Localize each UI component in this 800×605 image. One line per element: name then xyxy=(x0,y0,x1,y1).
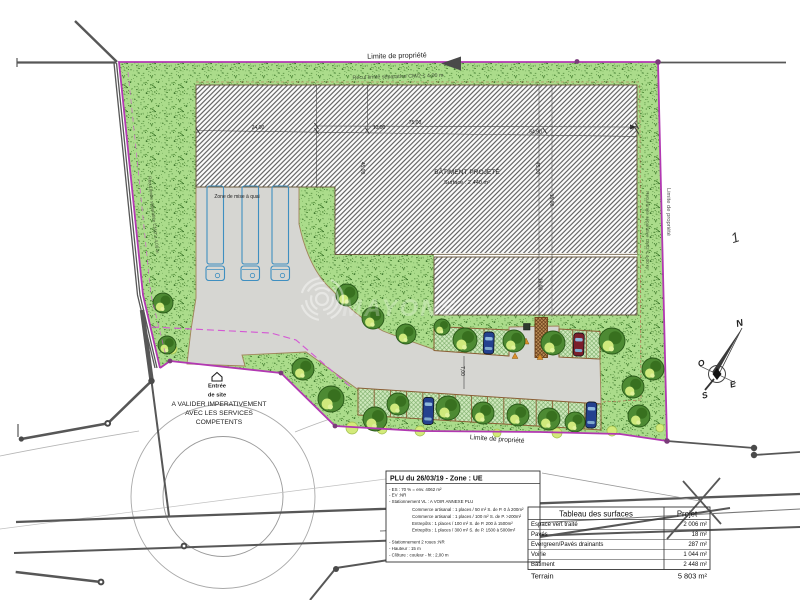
svg-text:Tableau des surfaces: Tableau des surfaces xyxy=(559,510,633,519)
svg-text:de site: de site xyxy=(208,393,227,399)
svg-text:2 006 m²: 2 006 m² xyxy=(683,522,707,528)
svg-text:Entrepôts : 1 places / 100 m²: Entrepôts : 1 places / 100 m² S. de P. 2… xyxy=(412,521,513,526)
svg-text:- Clôture : couleur - ht : 2,0: - Clôture : couleur - ht : 2,00 m xyxy=(389,553,449,558)
svg-text:PLU du 26/03/19 - Zone : UE: PLU du 26/03/19 - Zone : UE xyxy=(390,476,483,483)
svg-text:Zone de mise à quai: Zone de mise à quai xyxy=(214,194,259,200)
svg-text:75,00: 75,00 xyxy=(409,120,422,126)
svg-text:45,00: 45,00 xyxy=(534,162,540,175)
svg-text:Bâtiment: Bâtiment xyxy=(531,562,555,568)
svg-text:Commerce artisanal : 1 places: Commerce artisanal : 1 places / 100 m² S… xyxy=(412,514,522,519)
svg-text:7,00: 7,00 xyxy=(459,366,465,376)
svg-text:54,90: 54,90 xyxy=(529,130,542,136)
svg-text:24,00: 24,00 xyxy=(252,125,265,131)
svg-text:Evergreen/Pavés drainants: Evergreen/Pavés drainants xyxy=(531,542,603,548)
svg-text:Entrepôts : 1 places / 300 m²: Entrepôts : 1 places / 300 m² S. de P. 1… xyxy=(412,528,516,533)
svg-text:- Stationnement 2 roues :NR: - Stationnement 2 roues :NR xyxy=(389,540,445,545)
svg-text:MAYONS: MAYONS xyxy=(342,295,458,322)
svg-text:COMPETENTS: COMPETENTS xyxy=(196,419,243,426)
svg-text:AVEC LES SERVICES: AVEC LES SERVICES xyxy=(185,410,253,417)
svg-text:16,00: 16,00 xyxy=(537,278,543,291)
svg-text:- EV :NR: - EV :NR xyxy=(389,493,406,498)
svg-text:5 803 m²: 5 803 m² xyxy=(678,572,708,581)
svg-text:- ES : 70 % = env. 4062 m²: - ES : 70 % = env. 4062 m² xyxy=(389,487,442,492)
svg-text:18 m²: 18 m² xyxy=(692,532,707,538)
svg-text:- Hauteur : 15 m: - Hauteur : 15 m xyxy=(389,546,421,551)
svg-text:Entrée: Entrée xyxy=(208,384,227,390)
svg-text:Recul limite séparative CM/2 ≤: Recul limite séparative CM/2 ≤ 4,00 m xyxy=(645,191,650,269)
svg-text:Voirie: Voirie xyxy=(531,552,547,558)
svg-text:Limite de propriété: Limite de propriété xyxy=(665,188,671,236)
svg-text:Terrain: Terrain xyxy=(531,572,554,581)
svg-text:Surface : 2 440 m²: Surface : 2 440 m² xyxy=(444,180,490,186)
svg-text:Limite de propriété: Limite de propriété xyxy=(367,50,427,61)
svg-text:Projet: Projet xyxy=(677,510,698,519)
svg-text:Commerce artisanal : 1 places: Commerce artisanal : 1 places / 50 m² S.… xyxy=(412,507,524,512)
svg-text:287 m²: 287 m² xyxy=(688,542,707,548)
svg-text:Espace vert traité: Espace vert traité xyxy=(531,522,578,528)
svg-text:1 044 m²: 1 044 m² xyxy=(683,552,707,558)
svg-text:2 448 m²: 2 448 m² xyxy=(683,562,707,568)
svg-text:A VALIDER IMPERATIVEMENT: A VALIDER IMPERATIVEMENT xyxy=(172,401,267,408)
svg-text:15,00: 15,00 xyxy=(548,194,554,207)
svg-text:Pavés: Pavés xyxy=(531,532,548,538)
svg-text:10,00: 10,00 xyxy=(373,125,386,131)
svg-text:BÂTIMENT PROJETÉ: BÂTIMENT PROJETÉ xyxy=(434,167,500,176)
svg-text:- Stationnement VL : A VOIR A: - Stationnement VL : A VOIR ANNEXE PLU xyxy=(389,499,473,504)
svg-text:45,00: 45,00 xyxy=(359,162,365,175)
